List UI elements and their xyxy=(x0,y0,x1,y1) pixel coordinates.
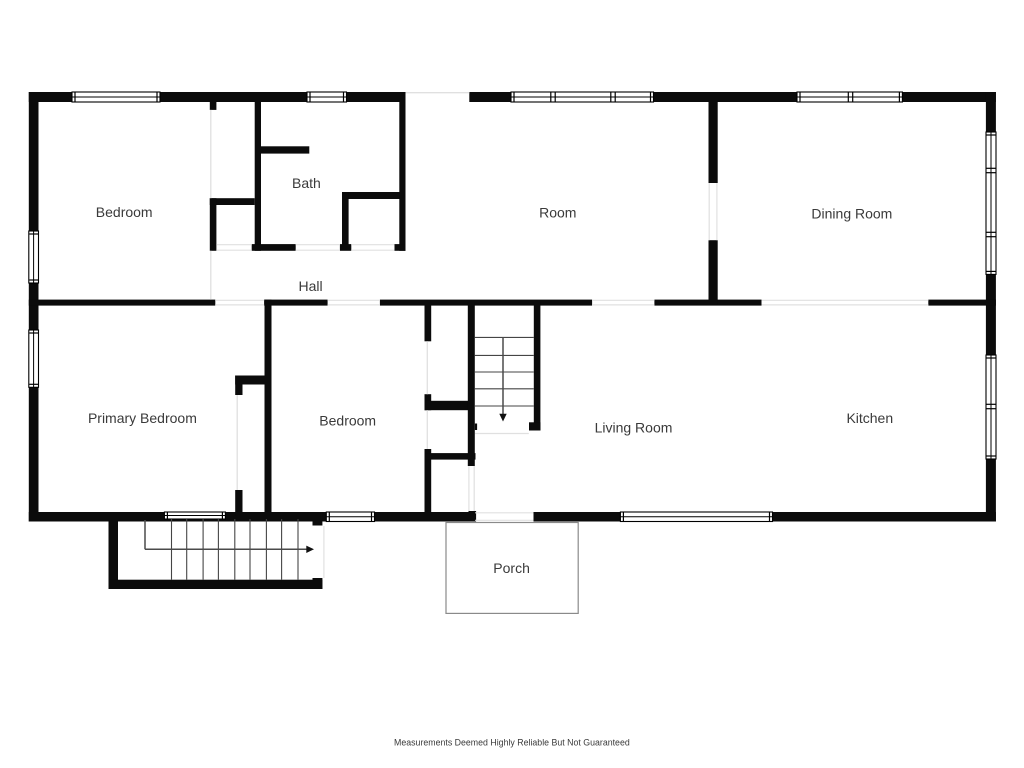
svg-text:Room: Room xyxy=(539,205,576,221)
svg-text:Porch: Porch xyxy=(493,560,530,576)
svg-text:Living Room: Living Room xyxy=(595,419,673,435)
svg-text:Dining Room: Dining Room xyxy=(811,206,892,222)
svg-text:Bedroom: Bedroom xyxy=(96,204,153,220)
svg-text:Measurements Deemed Highly Rel: Measurements Deemed Highly Reliable But … xyxy=(394,737,630,747)
svg-text:Hall: Hall xyxy=(299,278,323,294)
svg-text:Bedroom: Bedroom xyxy=(319,413,376,429)
svg-text:Primary Bedroom: Primary Bedroom xyxy=(88,410,197,426)
svg-text:Kitchen: Kitchen xyxy=(846,410,893,426)
svg-text:Bath: Bath xyxy=(292,175,321,191)
